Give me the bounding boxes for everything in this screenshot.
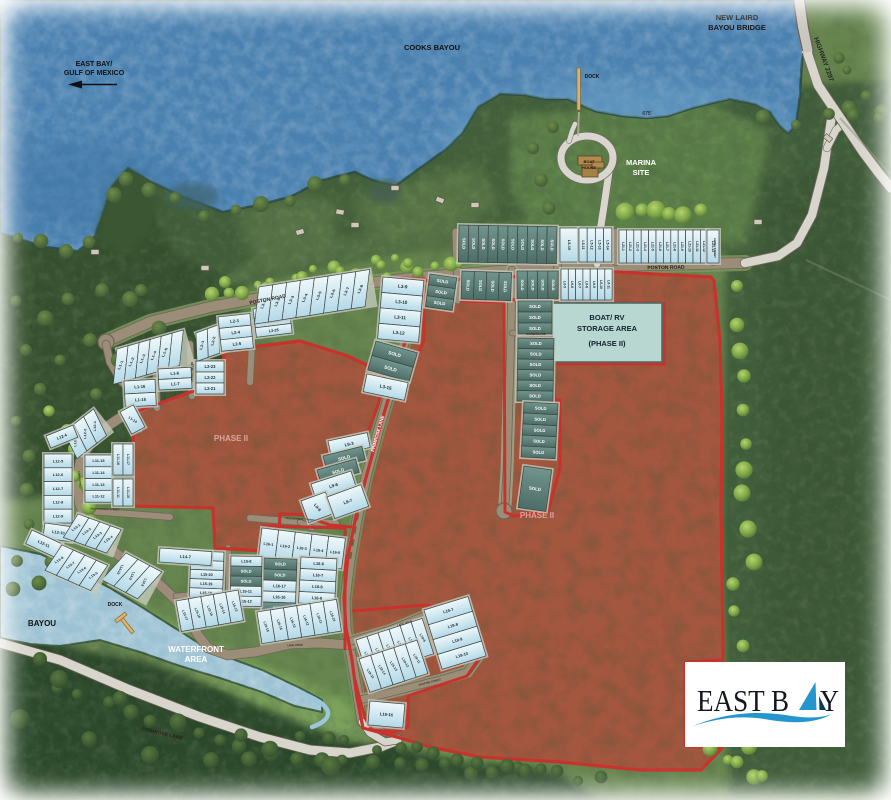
svg-text:L3-11: L3-11 — [394, 314, 407, 320]
svg-text:POSTON ROAD: POSTON ROAD — [647, 265, 685, 272]
svg-text:HOUSE: HOUSE — [582, 165, 597, 170]
svg-text:L2-3: L2-3 — [230, 318, 240, 324]
svg-text:SOLD: SOLD — [530, 351, 542, 356]
svg-text:SOLD: SOLD — [550, 240, 555, 251]
svg-text:L1-16: L1-16 — [134, 384, 146, 390]
svg-text:L5-12: L5-12 — [589, 240, 593, 249]
svg-text:L15-8: L15-8 — [241, 559, 252, 564]
svg-text:PHASE II: PHASE II — [520, 511, 554, 520]
svg-text:L11-12: L11-12 — [92, 494, 105, 499]
svg-text:L6-5: L6-5 — [563, 281, 567, 288]
svg-text:NATURE STREET: NATURE STREET — [190, 362, 193, 382]
svg-text:LAND DRIVE: LAND DRIVE — [287, 643, 303, 648]
svg-text:L2-21: L2-21 — [205, 386, 217, 391]
svg-text:NEW LAIRD: NEW LAIRD — [716, 13, 759, 22]
svg-text:SOLD: SOLD — [241, 579, 252, 584]
svg-text:L11-13: L11-13 — [92, 482, 105, 487]
svg-text:SOLD: SOLD — [541, 279, 546, 290]
svg-text:L21-8: L21-8 — [673, 242, 677, 251]
svg-text:MARINA: MARINA — [626, 158, 657, 167]
svg-text:L5-10: L5-10 — [567, 240, 572, 251]
svg-text:L16-8: L16-8 — [312, 584, 323, 590]
svg-text:BOAT: BOAT — [583, 159, 595, 164]
svg-text:SOLD: SOLD — [471, 238, 476, 249]
svg-text:WATERFRONT: WATERFRONT — [168, 645, 224, 654]
svg-text:L6-8: L6-8 — [585, 281, 589, 288]
svg-text:SITE: SITE — [633, 168, 650, 177]
svg-text:SOLD: SOLD — [491, 238, 496, 249]
svg-text:L1-6: L1-6 — [170, 370, 180, 375]
svg-text:675': 675' — [642, 111, 651, 117]
svg-text:L12-8: L12-8 — [53, 500, 64, 505]
svg-text:L5-14: L5-14 — [606, 240, 610, 249]
svg-text:L2-22: L2-22 — [205, 375, 217, 380]
svg-text:L16-7: L16-7 — [313, 572, 324, 578]
svg-text:SOLD: SOLD — [520, 239, 525, 250]
svg-text:CARMEN LANE: CARMEN LANE — [526, 332, 545, 336]
svg-text:L3-9: L3-9 — [398, 284, 408, 290]
svg-text:L21-10: L21-10 — [687, 241, 691, 252]
svg-text:SOLD: SOLD — [478, 280, 483, 291]
svg-text:SOLD: SOLD — [501, 239, 506, 250]
svg-text:L21-5: L21-5 — [650, 242, 654, 251]
svg-text:L12-1: L12-1 — [93, 421, 97, 432]
svg-text:SOLD: SOLD — [461, 238, 466, 249]
svg-text:L21-1: L21-1 — [621, 242, 625, 251]
svg-text:L16-17: L16-17 — [273, 583, 287, 588]
svg-text:(PHASE II): (PHASE II) — [588, 339, 626, 348]
svg-text:SOLD: SOLD — [530, 239, 535, 250]
svg-text:L21-6: L21-6 — [658, 242, 662, 251]
svg-text:SOLD: SOLD — [530, 362, 542, 367]
svg-text:STORAGE AREA: STORAGE AREA — [577, 324, 638, 333]
svg-text:SOLD: SOLD — [529, 315, 541, 320]
svg-text:L5-11: L5-11 — [581, 240, 585, 249]
svg-text:L2-4: L2-4 — [231, 329, 241, 335]
svg-text:L21-4: L21-4 — [643, 242, 647, 251]
svg-text:L12-5: L12-5 — [53, 458, 64, 463]
svg-text:L21-2: L21-2 — [628, 242, 632, 251]
svg-text:LENNA STREET: LENNA STREET — [713, 238, 717, 258]
svg-text:L21-7: L21-7 — [665, 242, 669, 251]
svg-text:L6-9: L6-9 — [592, 281, 596, 288]
svg-text:SOLD: SOLD — [540, 239, 545, 250]
svg-text:L11-10: L11-10 — [126, 487, 130, 498]
svg-text:SOLD: SOLD — [530, 279, 535, 290]
svg-text:DOCK: DOCK — [585, 74, 600, 80]
svg-text:L6-7: L6-7 — [577, 281, 581, 288]
svg-text:SOLD: SOLD — [490, 280, 495, 291]
svg-text:L3-10: L3-10 — [395, 299, 408, 305]
svg-text:L12-2: L12-2 — [83, 428, 87, 439]
svg-text:L15-20: L15-20 — [201, 573, 213, 577]
svg-text:L11-11: L11-11 — [116, 487, 120, 498]
svg-text:COOKS BAYOU: COOKS BAYOU — [404, 43, 460, 52]
svg-text:SOLD: SOLD — [274, 572, 285, 577]
svg-text:PHASE II: PHASE II — [214, 434, 248, 443]
svg-text:SOLD: SOLD — [503, 281, 508, 292]
svg-text:AREA: AREA — [185, 655, 208, 664]
svg-text:DOCK: DOCK — [108, 602, 123, 608]
svg-text:EAST BAY/: EAST BAY/ — [76, 61, 113, 68]
svg-text:SOLD: SOLD — [533, 438, 545, 444]
svg-text:SOLD: SOLD — [465, 280, 470, 291]
svg-text:SOLD: SOLD — [534, 416, 546, 422]
svg-text:L12-6: L12-6 — [53, 472, 64, 477]
svg-text:SOLD: SOLD — [529, 383, 541, 388]
svg-text:SOLD: SOLD — [481, 238, 486, 249]
svg-text:SOLD: SOLD — [532, 449, 544, 455]
svg-text:L2-23: L2-23 — [205, 364, 217, 369]
svg-text:L5-13: L5-13 — [598, 240, 602, 249]
svg-text:L21-3: L21-3 — [636, 242, 640, 251]
svg-text:L11-16: L11-16 — [116, 454, 120, 465]
svg-text:L6-10: L6-10 — [599, 280, 603, 289]
svg-text:L11-15: L11-15 — [92, 458, 105, 463]
svg-text:SOLD: SOLD — [551, 279, 556, 290]
svg-text:SOLD: SOLD — [510, 239, 515, 250]
svg-text:SOLD: SOLD — [520, 279, 525, 290]
svg-text:L12-7: L12-7 — [53, 486, 64, 491]
svg-text:EAST B: EAST B — [697, 683, 789, 718]
svg-text:SOLD: SOLD — [529, 393, 541, 398]
svg-text:L15-11: L15-11 — [240, 588, 253, 593]
svg-text:L6-11: L6-11 — [607, 280, 611, 289]
svg-text:L21-9: L21-9 — [680, 242, 684, 251]
svg-text:L2-5: L2-5 — [232, 341, 242, 347]
svg-text:L11-14: L11-14 — [92, 470, 105, 475]
svg-text:SOLD: SOLD — [530, 341, 542, 346]
svg-text:SOLD: SOLD — [534, 427, 546, 433]
svg-text:SOLD: SOLD — [535, 405, 547, 411]
svg-text:BAYOU BRIDGE: BAYOU BRIDGE — [708, 23, 766, 32]
svg-text:SOLD: SOLD — [529, 326, 541, 331]
svg-text:L14-7: L14-7 — [180, 554, 192, 560]
svg-text:SOLD: SOLD — [529, 372, 541, 377]
svg-text:L15-19: L15-19 — [200, 582, 212, 586]
svg-text:L16-6: L16-6 — [313, 561, 324, 567]
svg-text:L16-16: L16-16 — [273, 594, 287, 599]
svg-text:L11-17: L11-17 — [126, 454, 130, 465]
svg-text:Y: Y — [820, 683, 839, 718]
svg-text:L1-15: L1-15 — [135, 397, 147, 403]
svg-text:SOLD: SOLD — [529, 304, 541, 309]
svg-text:SOLD: SOLD — [241, 569, 252, 574]
svg-text:L6-6: L6-6 — [570, 281, 574, 288]
svg-text:L12-9: L12-9 — [53, 513, 64, 518]
svg-text:L21-11: L21-11 — [695, 241, 699, 252]
svg-text:L1-7: L1-7 — [171, 381, 181, 386]
svg-text:SOLD: SOLD — [275, 561, 286, 566]
svg-text:BOAT/ RV: BOAT/ RV — [589, 313, 624, 322]
svg-text:BAYOU: BAYOU — [28, 619, 56, 628]
svg-text:GULF OF MEXICO: GULF OF MEXICO — [64, 70, 125, 77]
